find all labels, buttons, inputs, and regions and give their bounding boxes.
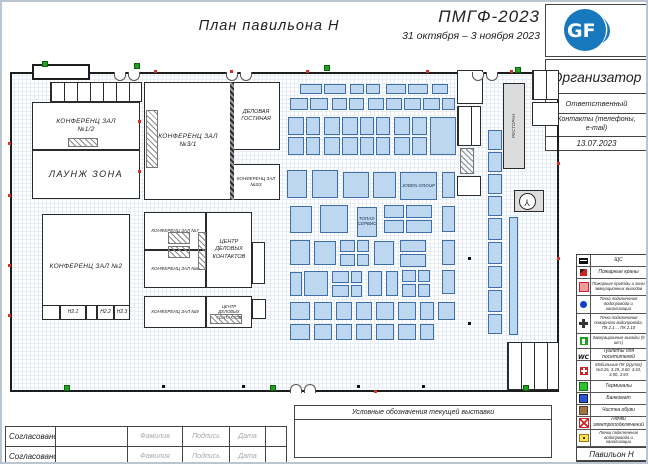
utility-point-icon (468, 322, 471, 325)
exhibition-booth (386, 98, 402, 110)
exhibition-booth (394, 137, 410, 155)
exhibition-booth (406, 205, 432, 218)
room (50, 82, 142, 102)
legend-icon-cell (577, 417, 591, 429)
hatch-el-icon (579, 418, 589, 428)
room-конференц-зал-9: КОНФЕРЕНЦ ЗАЛ №9 (144, 296, 206, 328)
legend-label: Точка подключения пожарного водопровода,… (591, 314, 646, 333)
legend-icon-cell (577, 279, 591, 295)
exhibition-booth (368, 98, 384, 110)
exhibition-booth (306, 137, 320, 155)
exhibition-booth (438, 302, 455, 320)
room-label: Н2.3 (117, 309, 128, 316)
exhibition-booth (442, 206, 455, 232)
exhibition-booth (386, 84, 406, 94)
room-label: КОНФЕРЕНЦ ЗАЛ №2 (50, 263, 123, 271)
room (168, 246, 190, 258)
room-label: Н2.1 (68, 309, 79, 316)
legend-label: Лючки подключения водопровода и канализа… (591, 430, 646, 446)
exhibition-booth (300, 84, 322, 94)
fire-point-icon (138, 120, 141, 123)
expo-legend-title: Условные обозначения текущей выставки (295, 406, 551, 420)
exit-marker-icon (42, 61, 48, 67)
room (168, 232, 190, 244)
exhibition-booth (488, 174, 502, 194)
room (252, 242, 265, 284)
legend-icon-cell (577, 405, 591, 416)
fire-point-icon (8, 264, 11, 267)
approval-blank (56, 427, 128, 446)
exhibition-booth (290, 240, 310, 265)
fire-point-icon (426, 70, 429, 73)
door-arc (114, 72, 140, 81)
event-dates: 31 октября – 3 ноября 2023 (332, 30, 540, 42)
exhibition-booth (386, 271, 398, 296)
mobilepk-icon (580, 367, 588, 375)
exhibition-booth (400, 254, 426, 267)
exhibition-booth (374, 241, 394, 265)
exhibition-booth (312, 170, 338, 198)
exhibition-booth (488, 314, 502, 334)
hatch-wat-icon (579, 434, 589, 442)
event-title: ПМГФ-2023 (332, 7, 540, 27)
room (86, 305, 97, 320)
room-конференц-зал: КОНФЕРЕНЦ ЗАЛ №3/3 (232, 164, 280, 200)
utility-point-icon (422, 385, 425, 388)
legend-icon-cell (577, 430, 591, 446)
legend-icon-cell (577, 267, 591, 278)
legend-icon-cell (577, 296, 591, 313)
exhibition-booth (376, 117, 390, 135)
exhibition-booth (290, 206, 312, 233)
exhibition-booth (488, 242, 502, 264)
approval-blank2 (266, 447, 288, 464)
room-деловая: ДЕЛОВАЯ ГОСТИНАЯ (232, 82, 280, 150)
door-arc (226, 72, 252, 81)
exhibition-booth (423, 98, 440, 110)
exhibition-booth (356, 302, 372, 320)
exhibition-booth: JODEN GROUP (400, 172, 437, 200)
exhibition-booth (351, 285, 362, 297)
exhibition-booth (420, 324, 434, 340)
door-arc (472, 72, 498, 81)
room (507, 342, 559, 390)
room-label: КОНФЕРЕНЦ ЗАЛ №3/3 (237, 176, 276, 188)
exhibition-booth (360, 137, 374, 155)
room (146, 110, 158, 168)
exhibition-booth (418, 270, 430, 282)
approval-row: СогласованоФамилияПодписьДата (5, 426, 287, 446)
approval-label: Согласовано (6, 427, 56, 446)
exhibition-booth: ТОПАЗ- СЕРВИС (357, 207, 377, 237)
legend-label: Эвакуационные выходы (9 шт.) (591, 334, 646, 348)
exhibition-booth (342, 117, 358, 135)
current-expo-legend-box: Условные обозначения текущей выставки (294, 405, 552, 458)
fire-point-icon (154, 70, 157, 73)
room-н2-1: Н2.1 (60, 305, 86, 320)
panel-icon (579, 258, 588, 264)
room-н2-3: Н2.3 (114, 305, 130, 320)
legend-row: Лючки подключения водопровода и канализа… (577, 430, 646, 447)
fire-point-icon (8, 142, 11, 145)
hydrant-icon (580, 269, 587, 276)
exhibition-booth (314, 302, 332, 320)
exit-marker-icon (515, 67, 521, 73)
room-label: КОНФЕРЕНЦ ЗАЛ №3/1 (158, 133, 218, 150)
exhibition-booth (357, 240, 369, 252)
gf-flame-logo-icon: GF (547, 6, 646, 55)
exhibition-booth (418, 284, 430, 297)
exhibition-booth (340, 254, 355, 266)
legend-icon-cell (577, 349, 591, 360)
legend-label: Туалеты для посетителей (591, 349, 646, 360)
exit-marker-icon (523, 385, 529, 391)
exhibition-booth (398, 302, 416, 320)
exhibition-booth (400, 240, 426, 252)
exhibition-booth (343, 172, 369, 198)
exhibition-booth (290, 324, 310, 340)
fire-point-icon (138, 170, 141, 173)
exhibition-booth (432, 84, 448, 94)
exhibition-booth (442, 98, 455, 110)
legend-row: Банкомат (577, 393, 646, 405)
exhibition-booth (402, 284, 416, 297)
exhibition-booth (408, 84, 428, 94)
approval-label: Согласовано (6, 447, 56, 464)
legend-icon-cell (577, 314, 591, 333)
pavilion-label: Павильон Н (576, 447, 647, 461)
exhibition-booth (384, 220, 404, 233)
exhibition-booth (340, 240, 355, 252)
exhibition-booth (288, 117, 304, 135)
exhibition-booth (304, 271, 328, 296)
exhibition-booth (332, 285, 349, 297)
legend-row: Туалеты для посетителей (577, 349, 646, 361)
legend-row: Терминалы (577, 381, 646, 393)
exhibition-booth (488, 130, 502, 150)
legend-label: Лючки электроподключений (591, 417, 646, 429)
legend-icon-cell (577, 381, 591, 392)
room-лаунж-зона: ЛАУНЖ ЗОНА (32, 150, 140, 199)
room (252, 299, 266, 319)
room-label: Н2.2 (100, 309, 111, 316)
legend-row: Лючки электроподключений (577, 417, 646, 430)
room (532, 70, 559, 100)
room (460, 148, 474, 174)
exhibition-booth (314, 324, 332, 340)
fire-point-icon (374, 390, 377, 393)
legend-row: Мобильные ПК (группа) №3.26, 3.29, 3.60,… (577, 361, 646, 381)
room-ресторан: РЕСТОРАН (503, 83, 525, 169)
room-label: ДЕЛОВАЯ ГОСТИНАЯ (241, 109, 271, 123)
room (532, 102, 559, 126)
fire-point-icon (510, 70, 513, 73)
legend-label: Точка подключения водопровода и канализа… (591, 296, 646, 313)
room-label: ЦЕНТР ДЕЛОВЫХ КОНТАКТОВ (213, 239, 246, 260)
legend-icon-cell (577, 361, 591, 380)
room-н2-2: Н2.2 (97, 305, 114, 320)
room-label: КОНФЕРЕНЦ ЗАЛ №8 (151, 266, 198, 272)
exhibition-booth (509, 217, 518, 335)
exit-icon (580, 337, 588, 345)
legend-row: Точка подключения пожарного водопровода,… (577, 314, 646, 334)
terminal-icon (579, 382, 588, 391)
exhibition-booth (332, 271, 349, 283)
room (68, 138, 98, 147)
exit-marker-icon (134, 63, 140, 69)
fire-point-icon (557, 162, 560, 165)
exhibition-booth (290, 302, 310, 320)
approval-date: Дата (230, 447, 266, 464)
exhibition-booth (430, 117, 456, 155)
exhibition-booth (406, 220, 432, 233)
exhibition-booth (442, 240, 455, 265)
exhibition-booth (324, 117, 340, 135)
exhibition-booth (320, 205, 348, 233)
room (42, 305, 60, 320)
atm-icon (579, 394, 588, 403)
exhibition-booth (488, 290, 502, 312)
exhibition-booth (442, 270, 455, 294)
exhibition-booth (360, 117, 374, 135)
room (198, 232, 206, 270)
legend-row: Чистка обуви (577, 405, 646, 417)
exhibition-booth (488, 196, 502, 216)
legend-icon-cell (577, 393, 591, 404)
exhibition-booth (402, 270, 416, 282)
exhibition-booth (357, 254, 369, 266)
room-label: КОНФЕРЕНЦ ЗАЛ №9 (151, 309, 198, 315)
approval-date: Дата (230, 427, 266, 446)
exhibition-booth (306, 117, 320, 135)
exhibition-booth (368, 271, 382, 296)
exhibition-booth (404, 98, 421, 110)
exhibition-booth (373, 172, 396, 198)
room (457, 176, 481, 196)
room-центр: ЦЕНТР ДЕЛОВЫХ КОНТАКТОВ (206, 212, 252, 288)
exhibition-booth (351, 271, 362, 283)
room-label: КОНФЕРЕНЦ ЗАЛ №1/2 (56, 118, 116, 135)
room-конференц-зал-7: КОНФЕРЕНЦ ЗАЛ №7 (144, 212, 206, 250)
approval-row: СогласованоФамилияПодписьДата (5, 446, 287, 464)
fire-point-icon (557, 257, 560, 260)
exhibition-booth (442, 172, 455, 198)
exhibition-booth (488, 152, 502, 172)
approval-blank2 (266, 427, 288, 446)
exhibition-booth (349, 98, 364, 110)
approval-signature: Подпись (183, 447, 230, 464)
firewater-icon (579, 319, 588, 328)
exhibition-booth (290, 98, 308, 110)
exhibition-booth (356, 324, 372, 340)
exhibition-booth (398, 324, 416, 340)
legend-row: Пожарные проезды и зоны эвакуационных вы… (577, 279, 646, 296)
room (32, 64, 90, 80)
legend-label: Мобильные ПК (группа) №3.26, 3.29, 3.60,… (591, 361, 646, 380)
water-icon (580, 301, 587, 308)
exhibition-booth (350, 84, 364, 94)
room-y: Y (519, 193, 536, 210)
utility-point-icon (242, 385, 245, 388)
approval-signature: Подпись (183, 427, 230, 446)
drawing-sheet: КОНФЕРЕНЦ ЗАЛ №1/2ЛАУНЖ ЗОНАКОНФЕРЕНЦ ЗА… (0, 0, 648, 464)
legend-label: Банкомат (591, 393, 646, 404)
legend-label: ЩС (591, 255, 646, 266)
approval-table: СогласованоФамилияПодписьДатаСогласовано… (5, 426, 287, 464)
exhibition-booth (488, 266, 502, 288)
organizer-logo: GF (545, 4, 648, 57)
exhibition-booth (324, 84, 346, 94)
utility-point-icon (468, 257, 471, 260)
legend-label: Чистка обуви (591, 405, 646, 416)
date-label: 13.07.2023 (546, 137, 647, 150)
exhibition-booth (488, 218, 502, 240)
svg-text:GF: GF (567, 20, 596, 42)
contacts-label: Контакты (телефоны, e-mail) (546, 114, 647, 137)
exhibition-booth (287, 170, 307, 198)
exhibition-booth (384, 205, 404, 218)
event-header: ПМГФ-2023 31 октября – 3 ноября 2023 (332, 7, 540, 42)
utility-point-icon (162, 385, 165, 388)
approval-surname: Фамилия (128, 427, 183, 446)
exit-marker-icon (64, 385, 70, 391)
fire-point-icon (8, 314, 11, 317)
fire-point-icon (306, 70, 309, 73)
approval-surname: Фамилия (128, 447, 183, 464)
exhibition-booth (412, 137, 427, 155)
zone-icon (579, 282, 589, 292)
room (210, 314, 242, 324)
exhibition-booth (366, 84, 380, 94)
exhibition-booth (420, 302, 434, 320)
exhibition-booth (376, 324, 394, 340)
exhibition-booth (342, 137, 358, 155)
exhibition-booth (336, 324, 352, 340)
organizer-label: Организатор (546, 60, 647, 94)
legend-row: Пожарные краны (577, 267, 646, 279)
door-arc (290, 384, 316, 393)
legend-row: Точка подключения водопровода и канализа… (577, 296, 646, 314)
room-label: Y (524, 196, 530, 208)
legend-label: Пожарные краны (591, 267, 646, 278)
legend-icon-cell (577, 255, 591, 266)
legend-table: ЩСПожарные краныПожарные проезды и зоны … (576, 254, 647, 462)
exhibition-booth (412, 117, 427, 135)
exhibition-booth (332, 98, 347, 110)
exhibition-booth (336, 302, 352, 320)
exit-marker-icon (270, 385, 276, 391)
utility-point-icon (357, 385, 360, 388)
room-label: ЛАУНЖ ЗОНА (49, 169, 123, 181)
floor-plan: КОНФЕРЕНЦ ЗАЛ №1/2ЛАУНЖ ЗОНАКОНФЕРЕНЦ ЗА… (2, 2, 648, 464)
exit-marker-icon (324, 65, 330, 71)
approval-blank (56, 447, 128, 464)
legend-row: ЩС (577, 255, 646, 267)
exhibition-booth (324, 137, 340, 155)
exhibition-booth (376, 137, 390, 155)
exhibition-booth (290, 272, 302, 296)
room (230, 82, 234, 200)
exhibition-booth (314, 241, 336, 265)
room (457, 106, 481, 146)
exhibition-booth (394, 117, 410, 135)
exhibition-booth (288, 137, 304, 155)
exhibition-booth (310, 98, 328, 110)
legend-label: Пожарные проезды и зоны эвакуационных вы… (591, 279, 646, 295)
fire-point-icon (8, 194, 11, 197)
room-label: РЕСТОРАН (511, 114, 517, 138)
responsible-label: Ответственный (546, 94, 647, 114)
legend-label: Терминалы (591, 381, 646, 392)
fire-point-icon (230, 70, 233, 73)
org-table: Организатор Ответственный Контакты (теле… (545, 59, 648, 151)
shoe-icon (579, 406, 588, 415)
exhibition-booth (376, 302, 394, 320)
